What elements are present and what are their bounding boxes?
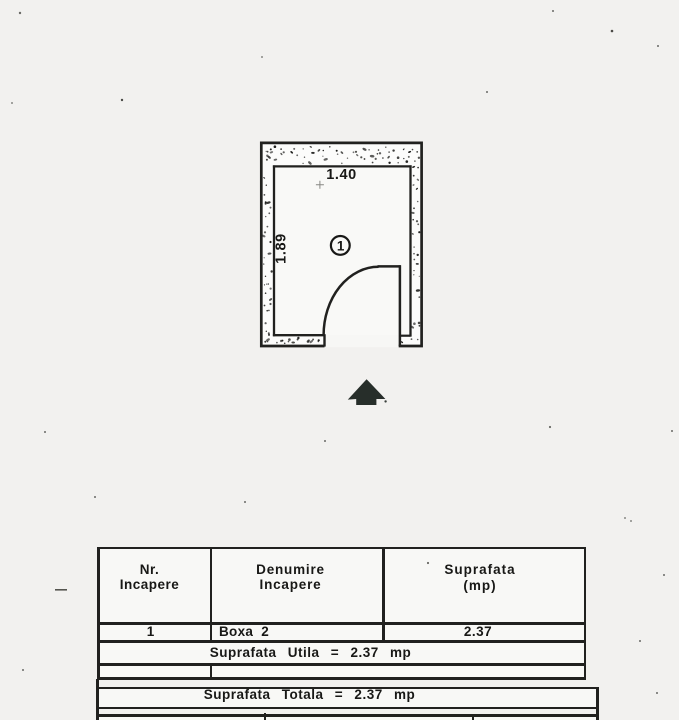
svg-text:1.40: 1.40 bbox=[326, 167, 357, 183]
svg-text:1.89: 1.89 bbox=[274, 233, 290, 264]
svg-text:1: 1 bbox=[337, 239, 345, 254]
